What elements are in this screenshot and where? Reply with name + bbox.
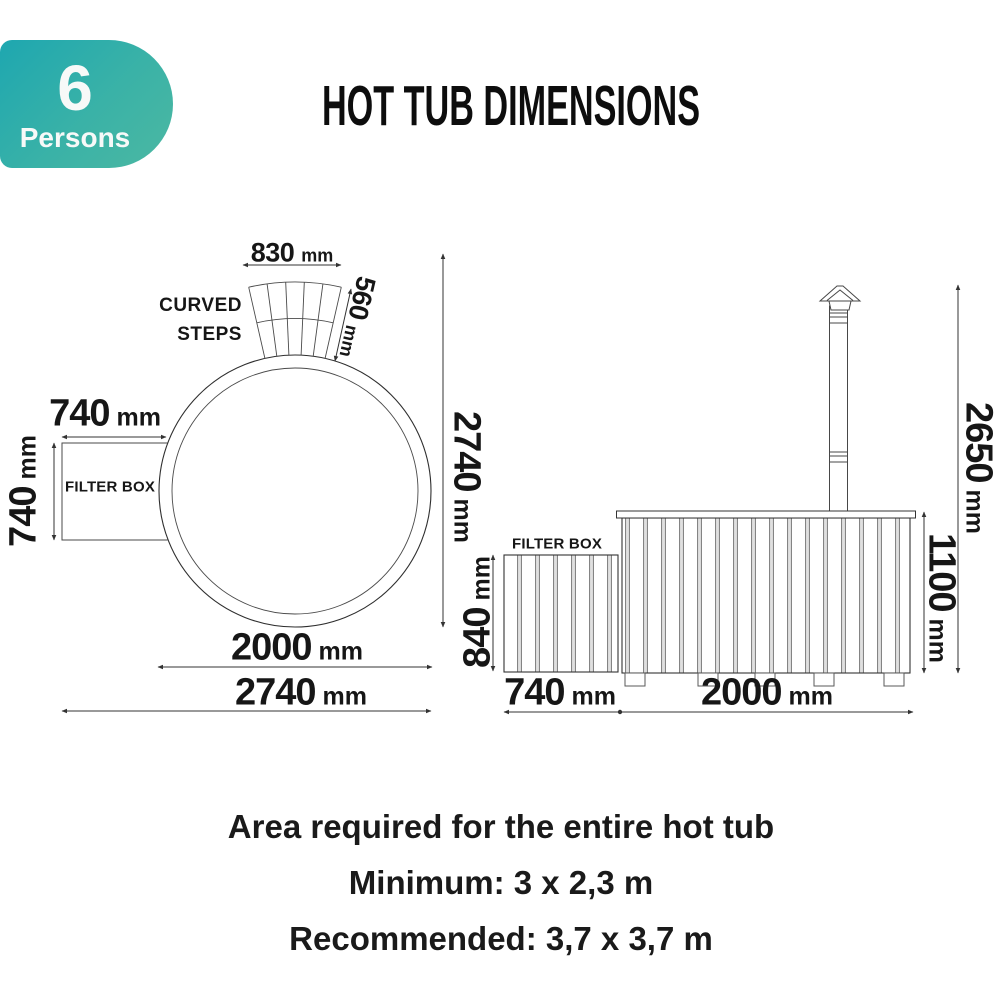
side-overall-height-unit: mm [960,490,989,534]
side-filter-height-unit: mm [468,556,497,600]
tub-diameter-dimension: 2000 mm [231,627,363,670]
persons-label: Persons [0,124,150,152]
steps-width-value: 830 [251,238,295,269]
chimney-cap [820,286,860,301]
overall-depth-unit: mm [448,499,477,543]
curved-steps-caption-line1: CURVED [130,291,242,320]
minimum-area-text: Minimum: 3 x 2,3 m [0,855,1002,911]
side-tub-width-dimension: 2000 mm [701,672,833,715]
filter-depth-value: 740 [3,487,46,547]
side-overall-height-dimension: 2650 mm [957,402,1000,534]
side-tub-width-value: 2000 [701,672,782,715]
curved-steps-caption: CURVED STEPS [130,291,242,349]
recommended-area-text: Recommended: 3,7 x 3,7 m [0,911,1002,967]
persons-badge-content: 6 Persons [0,56,150,152]
side-view-filter-box [504,555,618,672]
tub-body-slats [622,518,910,673]
steps-width-unit: mm [301,246,333,267]
curved-steps [249,282,342,358]
area-required-text: Area required for the entire hot tub [0,799,1002,855]
tub-rim [617,511,916,518]
side-filter-width-value: 740 [504,672,564,715]
area-requirements: Area required for the entire hot tub Min… [0,799,1002,967]
persons-badge: 6 Persons [0,40,173,168]
top-view-filter-box-label: FILTER BOX [65,479,155,496]
overall-width-dimension: 2740 mm [235,672,367,715]
persons-count: 6 [0,56,150,120]
filter-width-dimension: 740 mm [49,393,161,436]
side-tub-width-unit: mm [789,683,833,712]
tub-diameter-value: 2000 [231,627,312,670]
overall-width-unit: mm [323,683,367,712]
chimney-pipe [830,306,848,512]
page-title: HOT TUB DIMENSIONS [322,73,700,139]
filter-width-unit: mm [116,404,160,433]
tub-diameter-unit: mm [319,638,363,667]
side-tub-height-dimension: 1100 mm [920,533,963,663]
side-filter-height-dimension: 840 mm [457,556,500,668]
steps-depth-unit: mm [335,323,363,359]
tub-outer-wall [159,355,431,627]
side-tub-height-value: 1100 [920,533,963,611]
top-view-tub [159,355,431,627]
curved-steps-caption-line2: STEPS [130,320,242,349]
overall-depth-dimension: 2740 mm [445,411,488,543]
dim-line-divider-dot [618,710,622,714]
side-filter-width-unit: mm [571,683,615,712]
side-view-filter-box-label: FILTER BOX [512,536,602,553]
filter-width-value: 740 [49,393,109,436]
hot-tub-dimensions-infographic: 6 Persons HOT TUB DIMENSIONS 830 mm 560 … [0,0,1002,1000]
side-filter-height-value: 840 [457,608,500,668]
side-overall-height-value: 2650 [957,402,1000,483]
overall-width-value: 2740 [235,672,316,715]
filter-depth-unit: mm [14,435,43,479]
steps-width-dimension: 830 mm [251,238,334,269]
side-view-chimney [820,286,860,512]
overall-depth-value: 2740 [445,411,488,492]
side-tub-height-unit: mm [923,618,952,662]
tub-inner-wall [172,368,418,614]
side-filter-width-dimension: 740 mm [504,672,616,715]
filter-depth-dimension: 740 mm [3,435,46,547]
